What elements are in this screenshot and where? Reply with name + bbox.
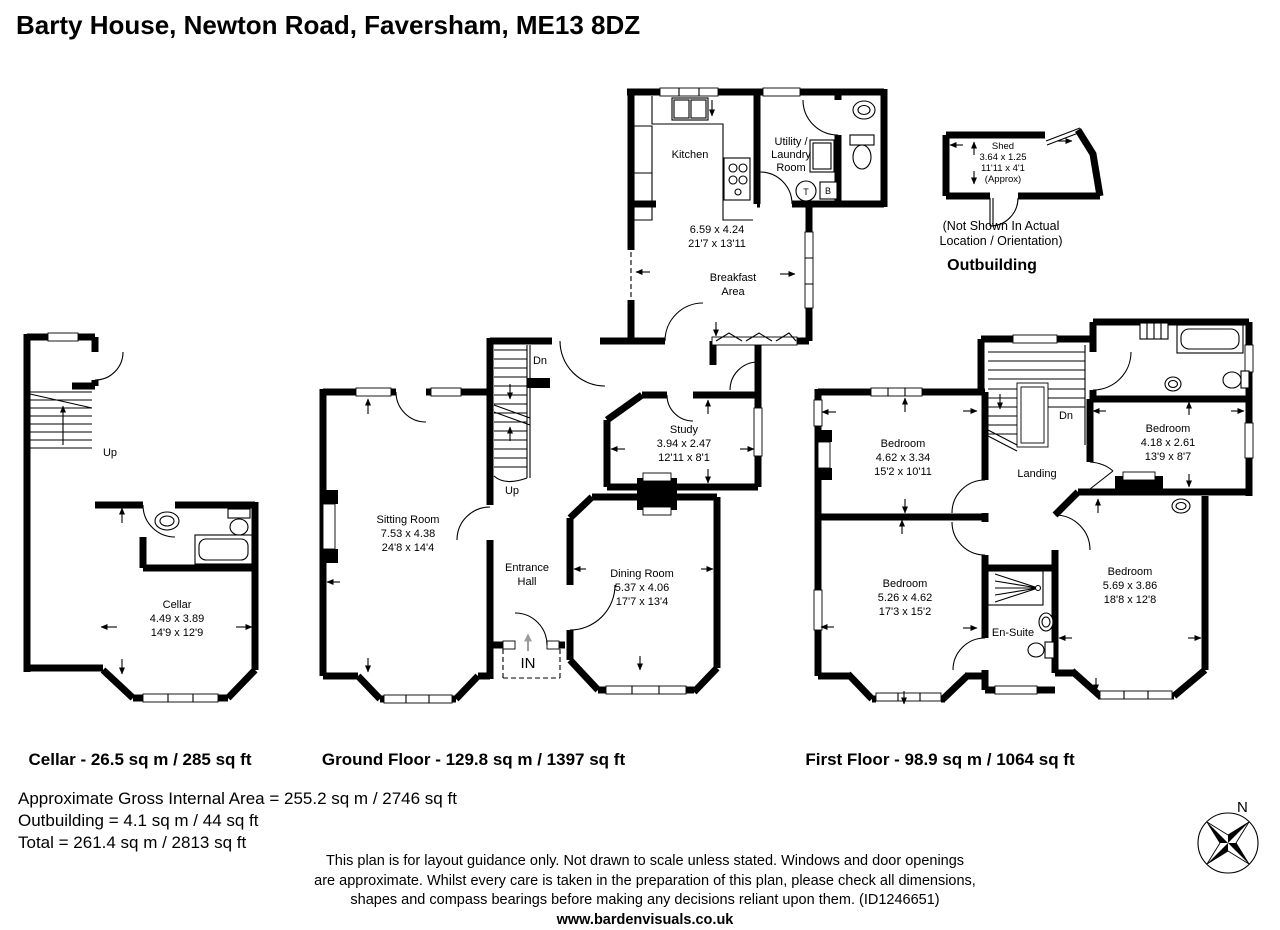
folding-doors-window <box>712 337 797 345</box>
bedroom3-imperial: 13'9 x 8'7 <box>1145 451 1191 463</box>
sitting-room-label: Sitting Room <box>377 514 440 526</box>
ground-up-label: Up <box>505 485 519 497</box>
disclaimer-line-2: are approximate. Whilst every care is ta… <box>250 872 1040 892</box>
bedroom1-imperial: 15'2 x 10'11 <box>874 466 932 478</box>
dining-room-metric: 5.37 x 4.06 <box>615 582 669 594</box>
first-bathroom-fixtures <box>1140 323 1249 391</box>
area-summary: Approximate Gross Internal Area = 255.2 … <box>18 788 457 854</box>
outbuilding-heading: Outbuilding <box>947 257 1037 274</box>
study-label: Study <box>670 424 699 436</box>
shed-label: Shed <box>992 141 1014 152</box>
breakfast-label-1: Breakfast <box>710 272 756 284</box>
in-label: IN <box>521 655 536 672</box>
utility-label-1: Utility / <box>775 136 809 148</box>
cellar-plan: Up Cellar 4.49 x 3.89 14'9 x 12'9 <box>27 333 255 702</box>
outbuilding-note-2: Location / Orientation) <box>940 234 1063 248</box>
disclaimer-line-3: shapes and compass bearings before makin… <box>250 891 1040 911</box>
kitchen-imperial: 21'7 x 13'11 <box>688 238 746 250</box>
cellar-walls <box>27 334 255 698</box>
kitchen-windows <box>660 88 813 345</box>
ensuite-label: En-Suite <box>992 627 1034 639</box>
cellar-room-metric: 4.49 x 3.89 <box>150 613 204 625</box>
dining-room-imperial: 17'7 x 13'4 <box>616 596 669 608</box>
utility-label-2: Laundry <box>771 149 811 161</box>
sitting-room-imperial: 24'8 x 14'4 <box>382 542 435 554</box>
cellar-area-label: Cellar - 26.5 sq m / 285 sq ft <box>15 750 265 770</box>
bedroom4-imperial: 18'8 x 12'8 <box>1104 594 1157 606</box>
floorplan-page: Up Cellar 4.49 x 3.89 14'9 x 12'9 <box>0 0 1280 930</box>
bedroom2-metric: 5.26 x 4.62 <box>878 592 932 604</box>
bedroom4-label: Bedroom <box>1108 566 1153 578</box>
bedroom3-metric: 4.18 x 2.61 <box>1141 437 1195 449</box>
page-title: Barty House, Newton Road, Faversham, ME1… <box>16 10 640 41</box>
kitchen-label: Kitchen <box>672 149 709 161</box>
shed-approx: (Approx) <box>985 174 1021 185</box>
entrance-hall-label-2: Hall <box>518 576 537 588</box>
study-metric: 3.94 x 2.47 <box>657 438 711 450</box>
ground-dn-label: Dn <box>533 355 547 367</box>
first-floor-area-label: First Floor - 98.9 sq m / 1064 sq ft <box>790 750 1090 770</box>
bedroom1-label: Bedroom <box>881 438 926 450</box>
compass-icon: N <box>1198 799 1258 873</box>
cellar-room-label: Cellar <box>163 599 192 611</box>
kitchen-block-plan: Kitchen 6.59 x 4.24 21'7 x 13'11 Breakfa… <box>627 88 884 395</box>
tank-label: T <box>803 187 809 197</box>
disclaimer: This plan is for layout guidance only. N… <box>250 852 1040 930</box>
bedroom3-label: Bedroom <box>1146 423 1191 435</box>
compass-north-label: N <box>1237 799 1248 816</box>
boiler-label: B <box>825 186 831 196</box>
website-url: www.bardenvisuals.co.uk <box>250 911 1040 930</box>
ensuite-toilet <box>1045 642 1054 658</box>
cloakroom-toilet <box>850 135 874 145</box>
cellar-up-label: Up <box>103 447 117 459</box>
summary-total: Total = 261.4 sq m / 2813 sq ft <box>18 832 457 854</box>
utility-label-3: Room <box>776 162 805 174</box>
dining-room-label: Dining Room <box>610 568 674 580</box>
bedroom2-imperial: 17'3 x 15'2 <box>879 606 932 618</box>
breakfast-label-2: Area <box>721 286 745 298</box>
shed-door-top <box>1046 128 1081 145</box>
sitting-room-metric: 7.53 x 4.38 <box>381 528 435 540</box>
cellar-dim-arrows <box>101 508 252 674</box>
first-dn-label: Dn <box>1059 410 1073 422</box>
outbuilding-note-1: (Not Shown In Actual <box>943 219 1060 233</box>
kitchen-metric: 6.59 x 4.24 <box>690 224 744 236</box>
first-chimneys <box>815 430 1163 492</box>
study-imperial: 12'11 x 8'1 <box>658 452 710 464</box>
bathroom-toilet <box>1241 371 1249 388</box>
cellar-stairs <box>30 392 92 448</box>
shed-imperial: 11'11 x 4'1 <box>981 163 1025 174</box>
cellar-doors <box>95 352 175 537</box>
entrance-hall-label-1: Entrance <box>505 562 549 574</box>
first-floor-plan: Bedroom 4.62 x 3.34 15'2 x 10'11 Bedroom… <box>814 322 1253 704</box>
bedroom4-metric: 5.69 x 3.86 <box>1103 580 1157 592</box>
ground-floor-area-label: Ground Floor - 129.8 sq m / 1397 sq ft <box>306 750 641 770</box>
disclaimer-line-1: This plan is for layout guidance only. N… <box>250 852 1040 872</box>
summary-gross-internal-area: Approximate Gross Internal Area = 255.2 … <box>18 788 457 810</box>
kitchen-dim-arrows <box>636 100 795 336</box>
hob-icon <box>724 158 750 200</box>
bedroom2-label: Bedroom <box>883 578 928 590</box>
first-stairs <box>988 345 1085 451</box>
shed-metric: 3.64 x 1.25 <box>979 152 1026 163</box>
bedroom1-metric: 4.62 x 3.34 <box>876 452 930 464</box>
ground-floor-plan: Dn Up Sitting Room 7.53 x 4.38 24'8 x 14… <box>320 338 762 703</box>
outbuilding-plan: Shed 3.64 x 1.25 11'11 x 4'1 (Approx) (N… <box>940 128 1101 274</box>
landing-label: Landing <box>1017 468 1056 480</box>
kitchen-block-walls <box>627 89 884 395</box>
summary-outbuilding: Outbuilding = 4.1 sq m / 44 sq ft <box>18 810 457 832</box>
cellar-room-imperial: 14'9 x 12'9 <box>151 627 204 639</box>
